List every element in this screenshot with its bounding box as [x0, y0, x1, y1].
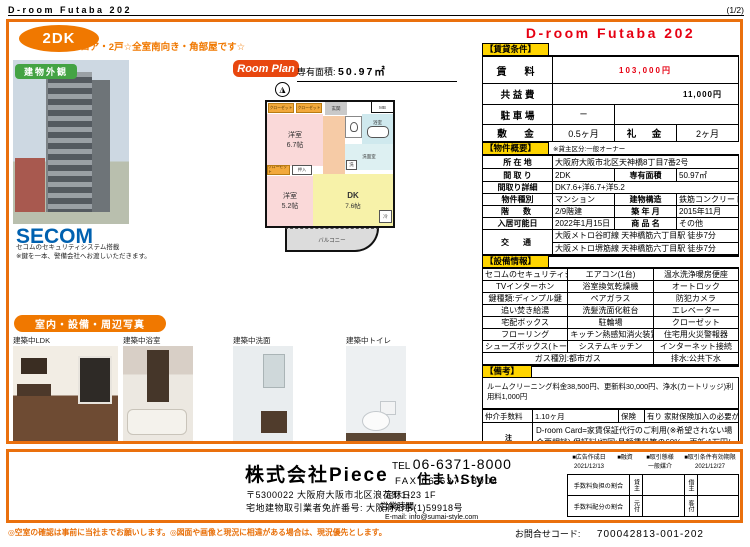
owner-note: ※貸主区分:一般オーナー	[553, 143, 625, 154]
equipment-item: クローゼット	[653, 317, 738, 329]
parking-label: 駐 車 場	[483, 105, 553, 125]
layout-detail-label: 間取り詳細	[483, 182, 553, 194]
equipment-item: エアコン(1台)	[568, 269, 653, 281]
closet: クローゼット	[296, 103, 322, 113]
move-in-value: 2022年1月15日	[553, 218, 615, 230]
section-remarks: 【備考】	[482, 365, 739, 378]
company-name: 株式会社Piece	[245, 460, 389, 487]
equipment-item: システムキッチン	[568, 341, 653, 353]
company-email: E-mail: info@sumai-style.com	[385, 511, 478, 521]
fee-share-right-value	[697, 475, 739, 496]
hallway	[323, 116, 345, 174]
company-tel: TEL 06-6371-8000	[392, 456, 512, 472]
fee-allocation-table: 手数料負担の割合 貸主 借主 手数料配分の割合 元付 客付	[567, 474, 739, 517]
washer-space: 洗	[346, 160, 357, 170]
equipment-item: キッチン熱感知消火装置	[568, 329, 653, 341]
photo-detail	[92, 80, 110, 212]
floor-label: 階 数	[483, 206, 553, 218]
catchphrase: ☆1フロア・2戸☆全室南向き・角部屋です☆	[57, 39, 245, 53]
rent-label: 賃 料	[483, 57, 553, 84]
bathroom: 浴室	[362, 114, 393, 144]
document-title: D-room Futaba 202	[8, 5, 132, 15]
validity-value: 2021/12/27	[681, 463, 739, 472]
fee-split-left-label: 元付	[630, 496, 643, 517]
validity-label: ■取引条件有効期限	[681, 454, 739, 463]
section-label: 【備考】	[482, 365, 532, 377]
section-property-overview: 【物件概要】 ※貸主区分:一般オーナー	[482, 142, 739, 155]
photo-washstand	[233, 346, 293, 441]
structure-label: 建物構造	[615, 194, 677, 206]
room-label: 洋室5.2帖	[282, 191, 299, 211]
property-type-label: 物件種別	[483, 194, 553, 206]
area-value2: 50.97㎡	[677, 169, 739, 182]
equipment-item: 鍵種類:ディンプル鍵	[483, 293, 568, 305]
bathtub-icon	[367, 126, 389, 138]
footer: ◎空室の確認は事前に当社までお願いします。◎図面や画像と現況に相違がある場合は、…	[8, 527, 744, 540]
photo-detail	[15, 158, 45, 212]
email-label: E-mail:	[385, 514, 407, 521]
section-label: 【賃貸条件】	[482, 43, 549, 55]
equipment-item: セコムのセキュリティシステム	[483, 269, 568, 281]
room-label: DK7.6帖	[345, 191, 361, 210]
photo-caption-bath: 建築中浴室	[123, 335, 161, 346]
access-label: 交 通	[483, 230, 553, 255]
layout-value: 2DK	[553, 169, 615, 182]
secom-note-2: ※鍵を一本、警備会社へお渡しいただきます。	[16, 253, 236, 262]
built-value: 2015年11月	[677, 206, 739, 218]
fee-split-left-value	[643, 496, 685, 517]
email-value: info@sumai-style.com	[409, 514, 478, 521]
western-room-2: 洋室5.2帖	[267, 176, 313, 226]
property-title: D-room Futaba 202	[482, 22, 739, 43]
photo-detail	[17, 384, 51, 396]
gas-type: ガス種別:都市ガス	[483, 353, 654, 365]
built-label: 築 年 月	[615, 206, 677, 218]
ad-date-label: ■広告作成日	[567, 454, 611, 463]
equipment-item: 洗髪洗面化粧台	[568, 305, 653, 317]
toilet-icon	[350, 122, 358, 132]
transaction-headers: ■広告作成日 2021/12/13 ■融資 ■取引態様 一般媒介 ■取引条件有効…	[567, 454, 739, 472]
interior-photos-label: 室内・設備・周辺写真	[14, 315, 166, 332]
photo-detail	[263, 354, 285, 388]
fee-split-right-label: 客付	[684, 496, 697, 517]
notes-label-cell: 注意事項	[483, 423, 533, 444]
photo-detail	[147, 350, 169, 402]
location-value: 大阪府大阪市北区天神橋8丁目7番2号	[553, 156, 739, 169]
section-label: 【設備情報】	[482, 255, 549, 267]
transaction-type: ■取引態様 一般媒介	[639, 454, 681, 472]
building-exterior-photo	[13, 60, 129, 224]
transaction-type-value: 一般媒介	[639, 463, 681, 472]
photo-ldk	[13, 346, 118, 441]
area-label: 専有面積:	[297, 67, 336, 77]
main-content-frame: 2DK ☆1フロア・2戸☆全室南向き・角部屋です☆ 建物外観 SECOM セコム…	[6, 19, 743, 444]
ad-date: ■広告作成日 2021/12/13	[567, 454, 611, 472]
key-money-label: 礼 金	[615, 125, 677, 142]
balcony: バルコニー	[285, 228, 379, 252]
parking-value: ー	[553, 105, 615, 125]
room-plan-label: Room Plan	[233, 60, 299, 77]
floor-plan: ◮ クローゼット クローゼット 玄関 MB 洋室6.7帖 浴室 洗面室 洗 クロ…	[257, 80, 399, 264]
entrance: 玄関	[325, 102, 347, 115]
equipment-item: 温水洗浄暖房便座	[653, 269, 738, 281]
equipment-item: インターネット接続	[653, 341, 738, 353]
page-indicator: (1/2)	[727, 5, 744, 15]
transaction-type-label: ■取引態様	[639, 454, 681, 463]
photo-caption-ldk: 建築中LDK	[13, 335, 50, 346]
photo-detail	[362, 411, 390, 431]
agency-fee-label: 仲介手数料	[483, 410, 533, 423]
equipment-item: 住宅用火災警報器	[653, 329, 738, 341]
fee-share-right-label: 借主	[684, 475, 697, 496]
tel-number: 06-6371-8000	[413, 456, 512, 472]
photo-detail	[127, 409, 187, 435]
equipment-item: 宅配ボックス	[483, 317, 568, 329]
equipment-item: オートロック	[653, 281, 738, 293]
floor-value: 2/9階建	[553, 206, 615, 218]
photo-detail	[46, 72, 92, 212]
photo-caption-wash: 建築中洗面	[233, 335, 271, 346]
photo-caption-toilet: 建築中トイレ	[346, 335, 391, 346]
equipment-item: エレベーター	[653, 305, 738, 317]
company-fax: FAX 06-6371-8004	[395, 476, 499, 487]
room-label: 洋室6.7帖	[287, 130, 304, 150]
photo-toilet	[346, 346, 406, 441]
fee-share-label: 手数料負担の割合	[568, 475, 630, 496]
equipment-item: 追い焚き給湯	[483, 305, 568, 317]
parking-extra	[615, 105, 739, 125]
access-value: 大阪メトロ谷町線 天神橋筋六丁目駅 徒歩7分 大阪メトロ堺筋線 天神橋筋六丁目駅…	[553, 230, 739, 255]
toilet-room	[345, 116, 362, 138]
company-info-frame: 株式会社Piece 住まいStyle 〒5300022 大阪府大阪市北区浪花町1…	[6, 449, 743, 523]
western-room-1: 洋室6.7帖	[267, 114, 323, 166]
equipment-item: TVインターホン	[483, 281, 568, 293]
equipment-item: 駐輪場	[568, 317, 653, 329]
photo-detail	[78, 356, 112, 404]
move-in-label: 入居可能日	[483, 218, 553, 230]
location-label: 所 在 地	[483, 156, 553, 169]
fee-share-left-value	[643, 475, 685, 496]
photo-detail	[346, 433, 406, 441]
secom-note-1: セコムのセキュリティシステム搭載	[16, 244, 236, 253]
fridge-space: 冷	[379, 210, 392, 223]
equipment-item: フローリング	[483, 329, 568, 341]
fax-number: 06-6371-8004	[422, 476, 499, 487]
photo-detail	[21, 358, 47, 374]
transaction-info: ■広告作成日 2021/12/13 ■融資 ■取引態様 一般媒介 ■取引条件有効…	[567, 454, 739, 517]
inquiry-code-label: お問合せコード:	[515, 529, 581, 539]
fax-label: FAX	[395, 476, 417, 487]
access-line-1: 大阪メトロ谷町線 天神橋筋六丁目駅 徒歩7分	[553, 230, 738, 243]
tel-label: TEL	[392, 461, 410, 472]
deposit-label: 敷 金	[483, 125, 553, 142]
section-label: 【物件概要】	[482, 142, 549, 154]
deposit-value: 0.5ヶ月	[553, 125, 615, 142]
oshiire-closet: 押入	[292, 165, 312, 175]
key-money-value: 2ヶ月	[677, 125, 739, 142]
product-label: 商 品 名	[615, 218, 677, 230]
loan-label: ■融資	[611, 454, 639, 463]
notes-text: D-room Card=家賃保証代行のご利用(※希望されない場合要相談) 保証料…	[533, 423, 739, 444]
photo-bath	[123, 346, 193, 441]
access-line-2: 大阪メトロ堺筋線 天神橋筋六丁目駅 徒歩7分	[555, 243, 736, 255]
ad-date-value: 2021/12/13	[567, 463, 611, 472]
property-flyer-page: D-room Futaba 202 (1/2) 2DK ☆1フロア・2戸☆全室南…	[0, 0, 750, 547]
section-rental-conditions: 【賃貸条件】	[482, 43, 739, 56]
validity: ■取引条件有効期限 2021/12/27	[681, 454, 739, 472]
rental-conditions-table: 賃 料 103,000円 共 益 費 11,000円 駐 車 場 ー 敷 金 0…	[482, 56, 739, 142]
photo-detail	[261, 411, 287, 433]
compass-icon: ◮	[275, 82, 290, 97]
notes-label: 注意事項	[503, 434, 513, 444]
remarks-fees-line: ルームクリーニング料金38,500円、更新料30,000円、浄水(カートリッジ)…	[482, 378, 739, 409]
property-details-column: D-room Futaba 202 【賃貸条件】 賃 料 103,000円 共 …	[482, 22, 739, 444]
layout-detail-value: DK7.6+洋6.7+洋5.2	[553, 182, 739, 194]
closet: クローゼット	[268, 103, 294, 113]
footer-note: ◎空室の確認は事前に当社までお願いします。◎図面や画像と現況に相違がある場合は、…	[8, 527, 387, 540]
layout-label: 間 取 り	[483, 169, 553, 182]
inquiry-code: お問合せコード: 700042813-001-202	[515, 527, 704, 540]
property-type-value: マンション	[553, 194, 615, 206]
agency-fee-value: 1.10ヶ月	[533, 410, 619, 423]
inquiry-code-value: 700042813-001-202	[597, 529, 704, 540]
drain-type: 排水:公共下水	[653, 353, 738, 365]
fee-share-left-label: 貸主	[630, 475, 643, 496]
structure-value: 鉄筋コンクリート造	[677, 194, 739, 206]
remarks-table: 仲介手数料 1.10ヶ月 保険 有り 家財保険加入の必要があります。 注意事項 …	[482, 409, 739, 444]
meter-box: MB	[371, 102, 393, 113]
area-value: 50.97㎡	[338, 66, 387, 78]
common-fee-label: 共 益 費	[483, 84, 553, 105]
section-equipment: 【設備情報】	[482, 255, 739, 268]
floor-plan-walls: クローゼット クローゼット 玄関 MB 洋室6.7帖 浴室 洗面室 洗 クローゼ…	[265, 100, 395, 228]
equipment-item: 浴室換気乾燥機	[568, 281, 653, 293]
equipment-item: シューズボックス(トールタイプ)	[483, 341, 568, 353]
area-label2: 専有面積	[615, 169, 677, 182]
fee-split-label: 手数料配分の割合	[568, 496, 630, 517]
property-overview-table: 所 在 地 大阪府大阪市北区天神橋8丁目7番2号 間 取 り 2DK 専有面積 …	[482, 155, 739, 255]
equipment-item: 防犯カメラ	[653, 293, 738, 305]
rent-value: 103,000円	[553, 57, 739, 84]
document-header: D-room Futaba 202 (1/2)	[8, 2, 744, 16]
insurance-label: 保険	[619, 410, 645, 423]
fee-split-right-value	[697, 496, 739, 517]
equipment-item: ペアガラス	[568, 293, 653, 305]
insurance-value: 有り 家財保険加入の必要があります。	[645, 410, 739, 423]
product-value: その他	[677, 218, 739, 230]
exterior-photo-label: 建物外観	[15, 64, 77, 79]
loan: ■融資	[611, 454, 639, 472]
equipment-table: セコムのセキュリティシステム エアコン(1台) 温水洗浄暖房便座 TVインターホ…	[482, 268, 739, 365]
common-fee-value: 11,000円	[553, 84, 739, 105]
closet: クローゼット	[267, 165, 290, 175]
